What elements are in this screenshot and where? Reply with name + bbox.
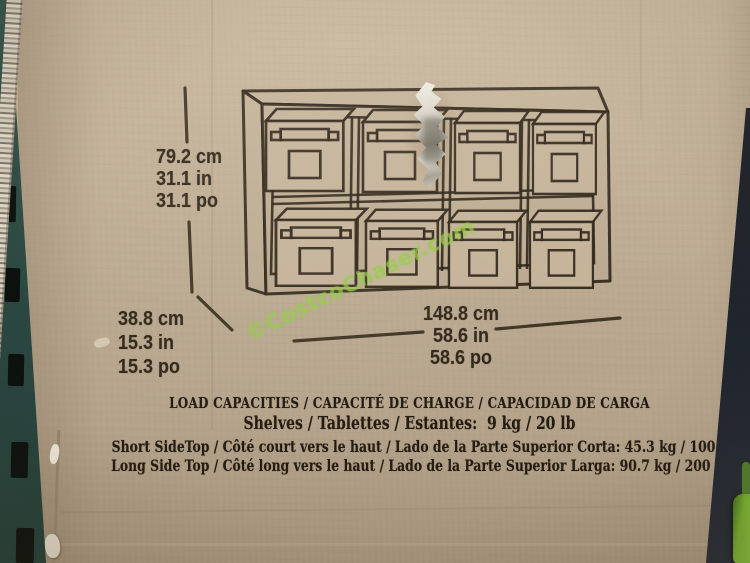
- green-object: [733, 494, 750, 563]
- width-dimensions: 148.8 cm 58.6 in 58.6 po: [394, 303, 529, 369]
- load-capacities-block: LOAD CAPACITIES / CAPACITÉ DE CHARGE / C…: [34, 395, 750, 475]
- width-cm-label: 148.8 cm: [394, 303, 529, 325]
- depth-po-label: 15.3 po: [118, 355, 184, 379]
- height-po-label: 31.1 po: [156, 190, 222, 212]
- rack-hole: [16, 528, 35, 563]
- rack-hole: [8, 354, 25, 386]
- height-cm-label: 79.2 cm: [156, 146, 222, 168]
- load-capacities-heading: LOAD CAPACITIES / CAPACITÉ DE CHARGE / C…: [34, 395, 750, 412]
- width-in-label: 58.6 in: [394, 325, 529, 347]
- height-dimensions: 79.2 cm 31.1 in 31.1 po: [156, 146, 222, 212]
- green-object-small: [742, 462, 750, 498]
- load-long-side-line: Long Side Top / Côté long vers le haut /…: [34, 456, 750, 475]
- load-short-side-line: Short SideTop / Côté court vers le haut …: [34, 437, 750, 456]
- height-in-label: 31.1 in: [156, 168, 222, 190]
- depth-in-label: 15.3 in: [118, 331, 184, 355]
- depth-cm-label: 38.8 cm: [118, 307, 184, 331]
- depth-dimensions: 38.8 cm 15.3 in 15.3 po: [118, 307, 184, 379]
- rack-hole: [5, 268, 21, 302]
- width-po-label: 58.6 po: [394, 347, 529, 369]
- rack-hole: [11, 442, 29, 478]
- cardboard-panel: ©CostcoChaser.com 79.2 cm 31.1 in 31.1 p…: [0, 0, 750, 563]
- costco-box-photo: ©CostcoChaser.com 79.2 cm 31.1 in 31.1 p…: [0, 0, 750, 563]
- load-shelves-line: Shelves / Tablettes / Estantes: 9 kg / 2…: [34, 412, 750, 437]
